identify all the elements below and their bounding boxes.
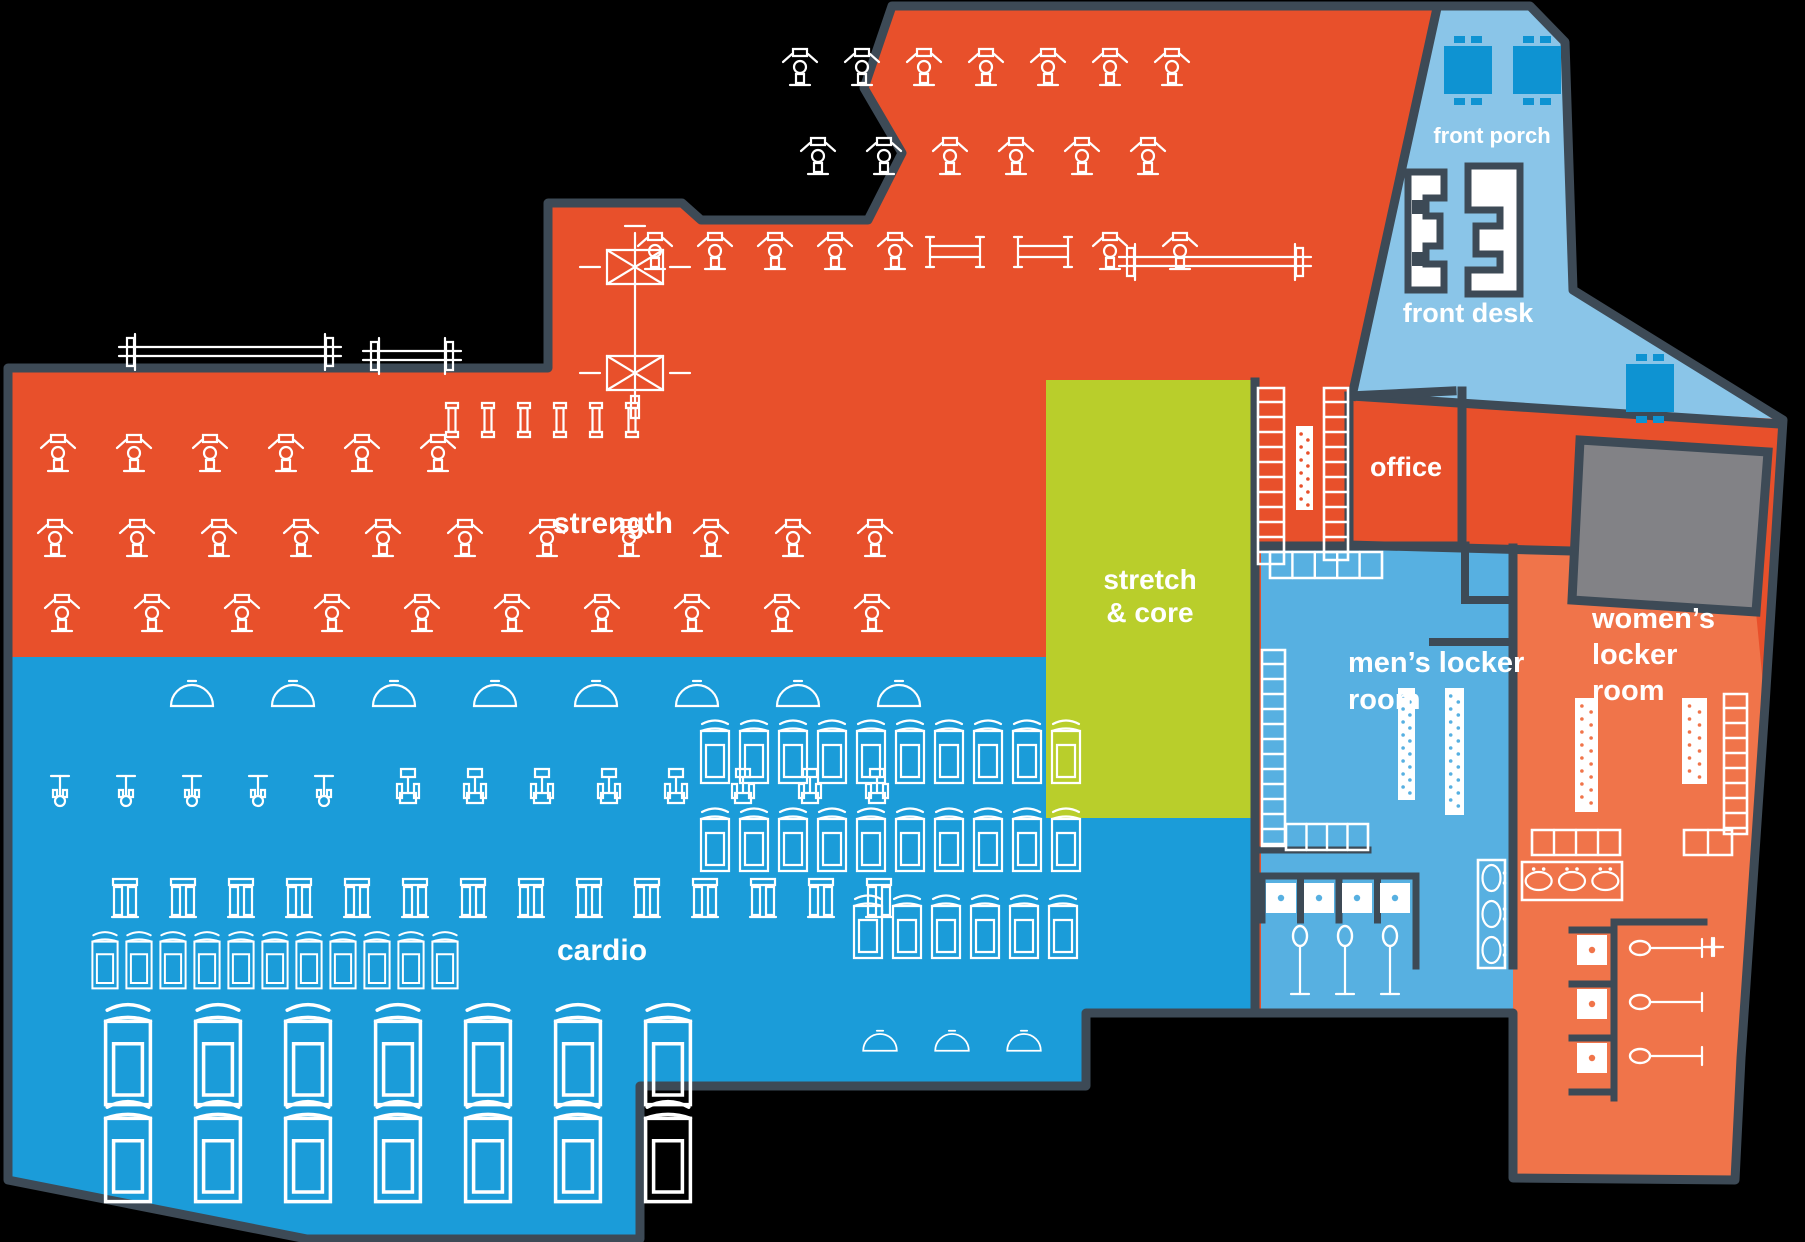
treadmill-icon bbox=[646, 1102, 691, 1202]
strength-machine-icon bbox=[783, 49, 817, 85]
toilet-icon bbox=[1380, 883, 1410, 913]
label-cardio: cardio bbox=[557, 934, 647, 967]
label-mens-locker: men’s locker bbox=[1348, 647, 1524, 679]
toilet-icon bbox=[1266, 883, 1296, 913]
label-stretch-core: stretch bbox=[1103, 564, 1196, 595]
bench-icon bbox=[1296, 426, 1313, 510]
strength-machine-icon bbox=[801, 138, 835, 174]
toilet-icon bbox=[1577, 935, 1607, 965]
label-front-porch: front porch bbox=[1433, 123, 1550, 148]
label-office: office bbox=[1370, 452, 1442, 482]
bench-icon bbox=[1445, 688, 1464, 815]
label-stretch-core: & core bbox=[1106, 597, 1193, 628]
room-gray bbox=[1572, 440, 1768, 612]
label-womens-locker: locker bbox=[1592, 639, 1677, 671]
label-womens-locker: room bbox=[1592, 675, 1665, 707]
label-mens-locker: room bbox=[1348, 684, 1421, 716]
gym-floor-plan-map: strengthcardiostretch& corefront porchfr… bbox=[0, 0, 1805, 1242]
label-front-desk: front desk bbox=[1403, 298, 1535, 328]
bench-icon bbox=[1575, 698, 1598, 812]
wall bbox=[1349, 391, 1452, 396]
toilet-icon bbox=[1304, 883, 1334, 913]
label-womens-locker: women’s bbox=[1591, 603, 1715, 635]
toilet-icon bbox=[1577, 1043, 1607, 1073]
floor-plan-svg: strengthcardiostretch& corefront porchfr… bbox=[0, 0, 1805, 1242]
label-strength: strength bbox=[553, 507, 673, 540]
toilet-icon bbox=[1342, 883, 1372, 913]
bench-icon bbox=[1682, 698, 1707, 784]
toilet-icon bbox=[1577, 989, 1607, 1019]
